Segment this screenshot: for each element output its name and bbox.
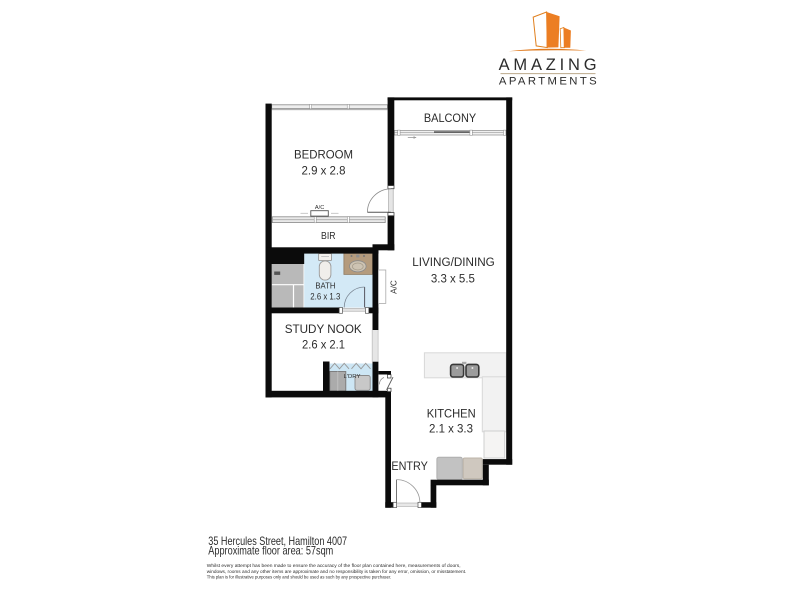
svg-text:AMAZING: AMAZING [499,56,601,74]
svg-text:L'DRY: L'DRY [344,374,361,380]
svg-text:windows, rooms and any other i: windows, rooms and any other items are a… [207,569,467,574]
svg-text:ENTRY: ENTRY [391,459,428,473]
svg-text:2.6 x 2.1: 2.6 x 2.1 [302,338,345,352]
svg-text:BIR: BIR [321,230,336,242]
svg-text:Whilst every attempt has been: Whilst every attempt has been made to en… [207,563,461,568]
svg-text:LIVING/DINING: LIVING/DINING [412,255,495,269]
svg-text:A/C: A/C [389,280,398,294]
svg-text:Approximate floor area: 57sqm: Approximate floor area: 57sqm [208,544,333,558]
svg-text:KITCHEN: KITCHEN [427,406,476,420]
svg-text:3.3 x 5.5: 3.3 x 5.5 [431,272,475,286]
svg-text:APARTMENTS: APARTMENTS [499,76,599,88]
svg-text:2.1 x 3.3: 2.1 x 3.3 [429,421,473,435]
svg-text:BEDROOM: BEDROOM [294,148,353,162]
svg-text:BALCONY: BALCONY [424,111,476,125]
svg-text:A/C: A/C [315,205,324,211]
svg-text:BATH: BATH [315,281,335,291]
svg-text:STUDY NOOK: STUDY NOOK [285,322,362,336]
svg-text:2.6 x 1.3: 2.6 x 1.3 [310,292,340,302]
svg-text:2.9 x 2.8: 2.9 x 2.8 [302,163,346,177]
svg-text:This plan is for illustrative: This plan is for illustrative purposes o… [207,575,391,580]
